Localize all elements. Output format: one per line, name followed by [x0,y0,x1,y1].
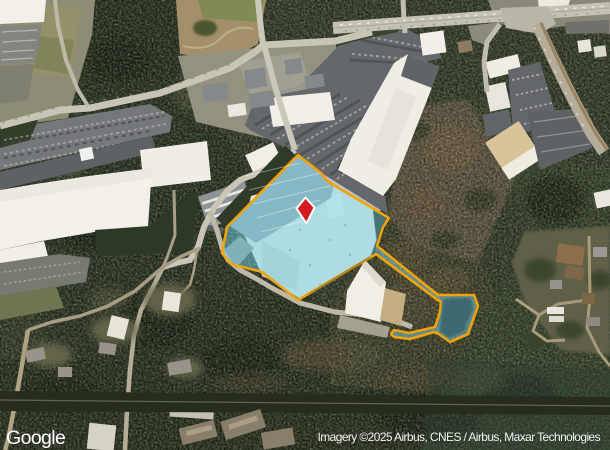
svg-text:Google: Google [6,427,65,449]
svg-text:Imagery ©2025 Airbus, CNES / A: Imagery ©2025 Airbus, CNES / Airbus, Max… [318,430,601,444]
